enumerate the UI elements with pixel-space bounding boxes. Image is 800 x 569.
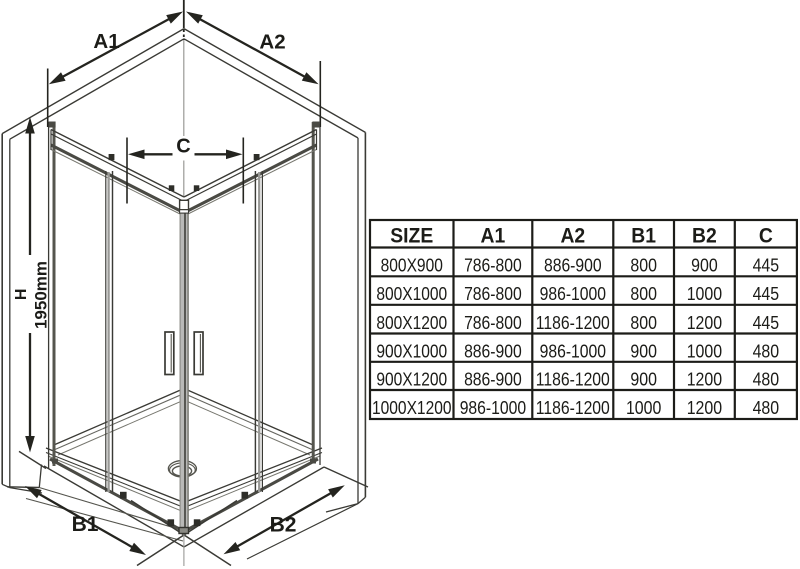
svg-text:B1: B1 <box>631 224 656 248</box>
svg-text:C: C <box>176 136 190 158</box>
svg-text:A1: A1 <box>93 30 119 53</box>
svg-text:986-1000: 986-1000 <box>460 397 526 419</box>
svg-text:1200: 1200 <box>687 368 722 389</box>
svg-text:886-900: 886-900 <box>464 340 522 362</box>
svg-text:786-800: 786-800 <box>464 312 522 334</box>
svg-text:786-800: 786-800 <box>464 254 522 276</box>
svg-text:1186-1200: 1186-1200 <box>536 368 610 390</box>
svg-text:800: 800 <box>630 312 657 333</box>
svg-text:A2: A2 <box>560 224 585 248</box>
svg-text:886-900: 886-900 <box>544 254 602 276</box>
svg-text:1000X1200: 1000X1200 <box>372 398 451 419</box>
svg-text:480: 480 <box>753 368 780 389</box>
svg-text:900: 900 <box>691 254 718 275</box>
svg-text:SIZE: SIZE <box>390 224 433 248</box>
svg-text:900: 900 <box>630 368 657 389</box>
svg-text:1000: 1000 <box>626 397 661 418</box>
svg-text:900X1200: 900X1200 <box>376 369 447 390</box>
svg-text:1200: 1200 <box>687 312 722 333</box>
svg-text:445: 445 <box>753 254 780 275</box>
svg-text:B1: B1 <box>72 513 99 536</box>
svg-text:800X900: 800X900 <box>381 255 443 276</box>
svg-text:886-900: 886-900 <box>464 368 522 390</box>
svg-text:900X1000: 900X1000 <box>376 341 447 362</box>
svg-text:1950mm: 1950mm <box>32 261 51 329</box>
svg-text:1000: 1000 <box>687 283 722 304</box>
svg-text:C: C <box>759 224 773 248</box>
svg-text:800X1200: 800X1200 <box>376 313 447 334</box>
svg-text:B2: B2 <box>692 224 717 248</box>
svg-text:1186-1200: 1186-1200 <box>536 312 610 334</box>
svg-text:A2: A2 <box>259 31 285 54</box>
svg-text:445: 445 <box>753 312 780 333</box>
svg-text:B2: B2 <box>270 514 297 537</box>
svg-text:986-1000: 986-1000 <box>540 283 606 305</box>
svg-text:800X1000: 800X1000 <box>376 284 447 305</box>
svg-text:H: H <box>13 289 30 301</box>
svg-text:786-800: 786-800 <box>464 283 522 305</box>
svg-text:986-1000: 986-1000 <box>540 340 606 362</box>
svg-text:1200: 1200 <box>687 397 722 418</box>
svg-text:480: 480 <box>753 340 780 361</box>
svg-text:445: 445 <box>753 283 780 304</box>
svg-text:A1: A1 <box>481 224 506 248</box>
svg-text:800: 800 <box>630 283 657 304</box>
svg-text:900: 900 <box>630 340 657 361</box>
svg-text:800: 800 <box>630 254 657 275</box>
svg-text:1000: 1000 <box>687 340 722 361</box>
svg-text:1186-1200: 1186-1200 <box>536 397 610 419</box>
svg-text:480: 480 <box>753 397 780 418</box>
